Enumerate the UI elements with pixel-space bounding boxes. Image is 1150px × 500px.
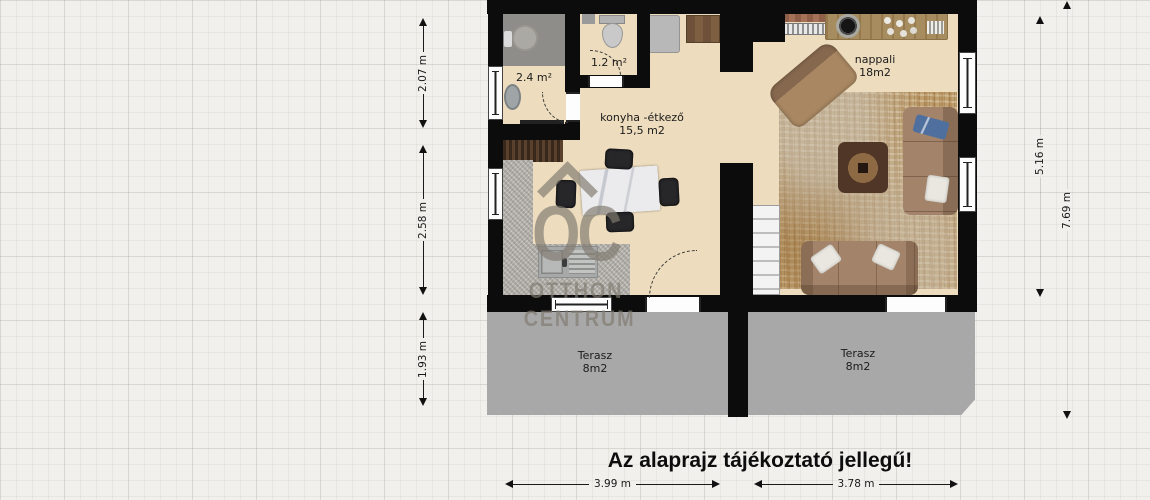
decor-tray <box>927 21 944 34</box>
dim-arrow-icon <box>419 312 427 320</box>
dimension-left-3: 1.93 m <box>416 312 430 406</box>
dim-arrow-icon <box>1063 411 1071 419</box>
dim-label: 2.58 m <box>417 202 429 239</box>
sofa-right <box>903 107 958 215</box>
window-glyph-icon <box>492 71 499 115</box>
throw-pillow-white <box>924 175 949 204</box>
radiator <box>783 23 826 35</box>
dim-label: 1.93 m <box>417 341 429 378</box>
watermark-line2: CENTRUM <box>524 306 628 332</box>
window-glyph-icon <box>963 58 971 109</box>
wc-cistern-box <box>582 14 595 24</box>
dimension-left-2: 2.58 m <box>416 145 430 295</box>
dim-arrow-icon <box>419 287 427 295</box>
door-opening <box>885 297 947 312</box>
room-label-bathroom: 2.4 m² <box>504 71 564 84</box>
wall-mid-upper <box>720 0 753 72</box>
dim-line <box>423 153 424 199</box>
table-center-detail <box>858 163 868 173</box>
dim-label: 3.99 m <box>594 478 631 490</box>
dimension-bottom-1: 3.99 m <box>505 476 720 492</box>
staircase <box>751 205 780 295</box>
disclaimer-caption: Az alaprajz tájékoztató jellegű! <box>520 449 1000 473</box>
window-glyph-icon <box>963 162 971 207</box>
window-glyph-icon <box>492 173 499 216</box>
dim-line <box>513 484 589 485</box>
floorplan-canvas: OC OTTHON CENTRUM 2.4 m² 1.2 m² konyha -… <box>0 0 1150 500</box>
shower-fixture-icon <box>504 31 512 47</box>
dim-line <box>1067 231 1068 411</box>
dim-line <box>1040 178 1041 289</box>
dim-line <box>1040 24 1041 135</box>
sofa-bottom <box>801 241 918 295</box>
room-label-living: nappali 18m2 <box>830 53 920 79</box>
dim-line <box>423 241 424 287</box>
coffee-table <box>838 142 888 193</box>
dim-label: 7.69 m <box>1061 192 1073 229</box>
watermark-line1: OTTHON <box>524 278 628 304</box>
room-area: 8m2 <box>823 360 893 373</box>
dim-arrow-icon <box>1036 289 1044 297</box>
dim-arrow-icon <box>950 480 958 488</box>
window-marker <box>959 52 976 114</box>
dimension-right-1: 5.16 m <box>1033 16 1047 297</box>
wall-bath-bottom <box>488 124 580 140</box>
dining-chair <box>604 148 633 169</box>
wall-terrace-divider <box>728 312 748 417</box>
window-marker <box>488 66 503 120</box>
dim-label: 3.78 m <box>838 478 875 490</box>
dim-arrow-icon <box>419 18 427 26</box>
room-name: konyha -étkező <box>578 111 706 124</box>
dim-arrow-icon <box>1063 1 1071 9</box>
decor-bowl-icon <box>836 14 860 38</box>
dim-arrow-icon <box>712 480 720 488</box>
dimension-left-1: 2.07 m <box>416 18 430 128</box>
dim-arrow-icon <box>1036 16 1044 24</box>
door-opening <box>645 297 701 312</box>
throw-pillow-white <box>810 243 843 274</box>
dim-arrow-icon <box>419 398 427 406</box>
door-opening <box>588 76 624 87</box>
room-area: 8m2 <box>560 362 630 375</box>
kitchen-counter-left <box>503 160 533 244</box>
fridge <box>648 15 680 53</box>
dim-arrow-icon <box>419 145 427 153</box>
shower-drain <box>512 25 538 51</box>
dim-line <box>423 380 424 398</box>
room-name: nappali <box>830 53 920 66</box>
room-label-kitchen: konyha -étkező 15,5 m2 <box>578 111 706 137</box>
room-label-terrace-right: Terasz 8m2 <box>823 347 893 373</box>
dim-line <box>423 94 424 120</box>
room-label-wc: 1.2 m² <box>584 56 634 69</box>
dining-chair <box>658 177 679 206</box>
dim-line <box>636 484 712 485</box>
decor-plates-icon <box>884 17 891 24</box>
wall-right <box>958 0 977 312</box>
dim-line <box>762 484 833 485</box>
wall-mid-lower <box>720 163 753 312</box>
room-label-terrace-left: Terasz 8m2 <box>560 349 630 375</box>
bathroom-sink <box>504 84 521 110</box>
throw-pillow-white <box>871 243 901 271</box>
room-area: 18m2 <box>830 66 920 79</box>
room-name: Terasz <box>560 349 630 362</box>
kitchen-upper-cabinet <box>686 15 720 43</box>
room-area: 15,5 m2 <box>578 124 706 137</box>
dim-arrow-icon <box>754 480 762 488</box>
window-marker <box>488 168 503 220</box>
dim-line <box>879 484 950 485</box>
dim-line <box>423 26 424 52</box>
dimension-bottom-2: 3.78 m <box>754 476 958 492</box>
wall-left <box>488 0 503 312</box>
wall-bath-wc <box>565 0 580 92</box>
dim-line <box>423 320 424 338</box>
dimension-right-2: 7.69 m <box>1060 1 1074 419</box>
window-marker <box>959 157 976 212</box>
dim-label: 2.07 m <box>417 55 429 92</box>
dim-label: 5.16 m <box>1034 138 1046 175</box>
dim-arrow-icon <box>419 120 427 128</box>
wall-closet-block <box>753 0 785 42</box>
dim-arrow-icon <box>505 480 513 488</box>
dim-line <box>1067 9 1068 189</box>
throw-pillow-blue <box>912 114 950 140</box>
room-name: Terasz <box>823 347 893 360</box>
watermark-logo: OC <box>532 194 619 272</box>
